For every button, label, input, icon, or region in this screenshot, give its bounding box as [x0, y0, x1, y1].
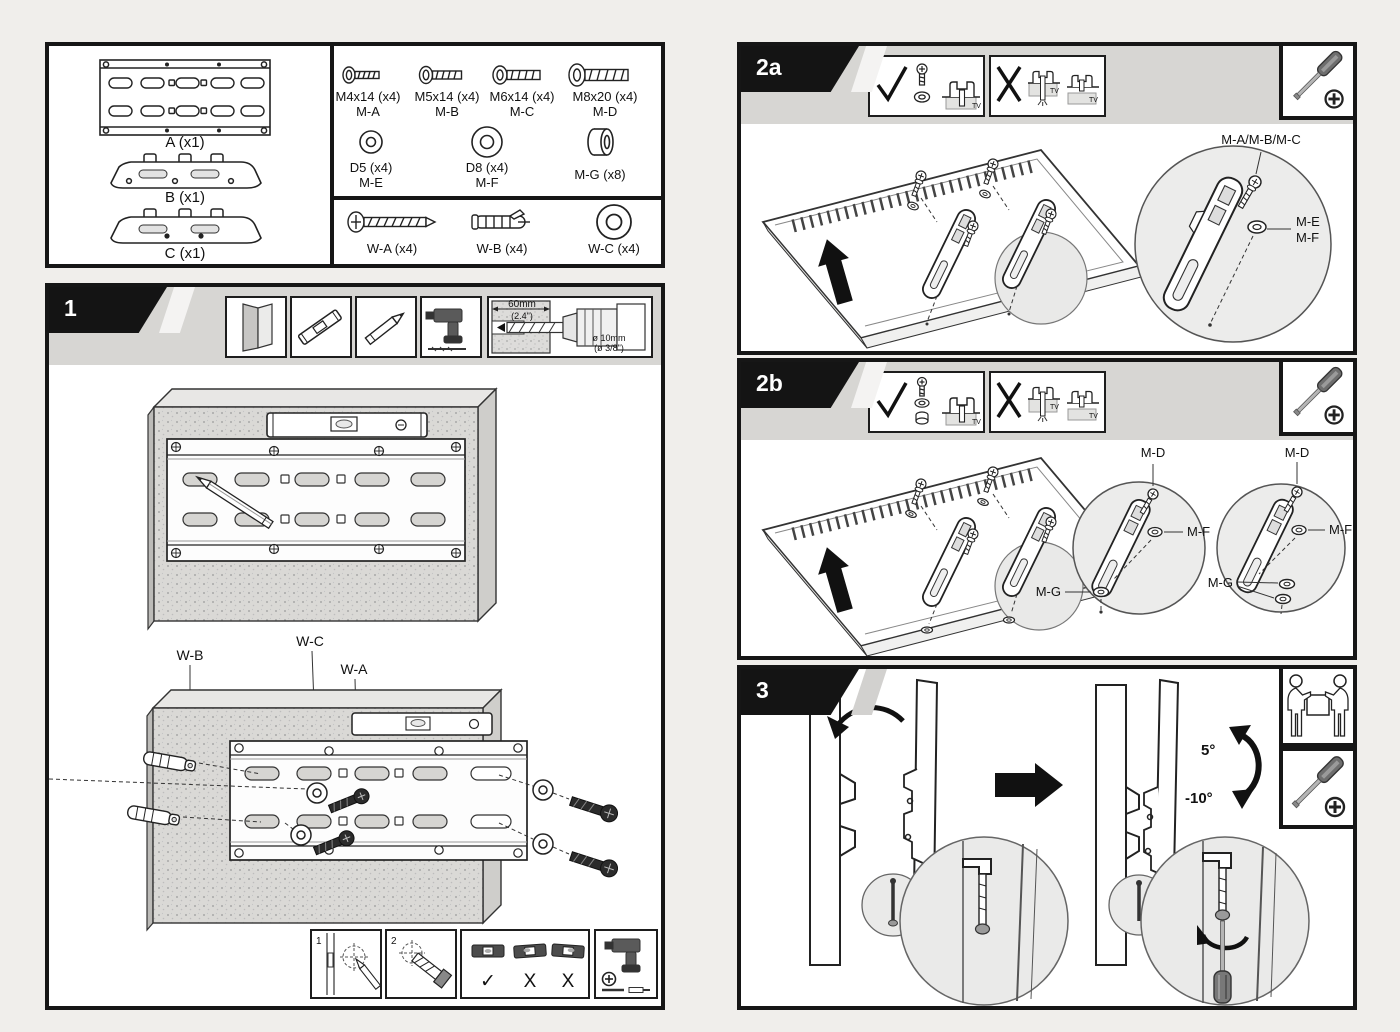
screw-icon — [917, 64, 927, 85]
wall-top-face — [153, 690, 501, 708]
step1-number-chip: 1 — [49, 287, 199, 333]
drill-length-inch-label: (2.4") — [511, 311, 533, 321]
step1-number: 1 — [64, 295, 77, 322]
spirit-level-on-plate — [352, 713, 492, 735]
wb-label: W-B — [177, 647, 204, 663]
screw-md-label: M-D — [1141, 445, 1166, 460]
wc-label: W-C — [296, 633, 324, 649]
tv-label: TV — [972, 103, 981, 110]
step3-number: 3 — [756, 677, 769, 704]
washer-me-size: D5 (x4) — [350, 160, 393, 175]
step2a-illustration: M-A/M-B/M-C M-E M-F — [741, 126, 1353, 351]
mark-hole-icon: 1 — [312, 931, 380, 997]
tv-label: TV — [972, 419, 981, 426]
washer-me-label: M-E — [1296, 214, 1320, 229]
washer-mf-code: M-F — [475, 175, 498, 190]
wa-label: W-A — [341, 661, 369, 677]
screw-mb-size: M5x14 (x4) — [414, 89, 479, 104]
washer-detail — [1148, 528, 1162, 537]
step2b-screwdriver-box — [1279, 358, 1357, 436]
washer-mf-size: D8 (x4) — [466, 160, 509, 175]
step2a-number: 2a — [756, 54, 782, 81]
step1-level-check-box: ✓ X X — [460, 929, 590, 999]
wrong-usage-icon: TV TV — [991, 57, 1104, 115]
washer-on-plate-1 — [307, 783, 327, 803]
chip-slash — [851, 46, 887, 92]
screw-md-label-2: M-D — [1285, 445, 1310, 460]
anchor-wb-label: W-B (x4) — [476, 241, 527, 256]
wall-top-face — [154, 389, 496, 407]
level-ok-icon — [472, 945, 504, 957]
drill-spec-icon: 60mm (2.4") ø 10mm (ø 3/8") — [489, 298, 651, 356]
tilt-up-label: 5° — [1201, 742, 1215, 759]
tool-drillspec-box: 60mm (2.4") ø 10mm (ø 3/8") — [487, 296, 653, 358]
tool-drill-box — [420, 296, 482, 358]
chip-slash — [159, 287, 195, 333]
correct-mount-diagram: TV — [942, 398, 981, 426]
zoom-circle-2 — [1217, 462, 1345, 614]
washer-me-code: M-E — [359, 175, 383, 190]
tilt-down-label: -10° — [1185, 790, 1213, 807]
washer-icon — [915, 92, 930, 102]
drill-icon — [422, 298, 480, 356]
level-x2-mark: X — [562, 971, 575, 992]
washer-mf-icon — [472, 127, 502, 157]
step2a-screwdriver-box — [1279, 42, 1357, 120]
step1-drill-tool-box — [594, 929, 658, 999]
screw-right-1 — [568, 793, 619, 824]
wall-left-face — [148, 407, 154, 629]
washer-mf-label: M-F — [1296, 230, 1319, 245]
step1-sub2-box: 2 — [385, 929, 457, 999]
chip-slash — [851, 362, 887, 408]
step3-screwdriver-box — [1279, 747, 1357, 829]
spacer-mg-label-2: M-G — [1208, 575, 1233, 590]
wall-plate-a — [167, 439, 465, 561]
screwdriver-icon — [1283, 751, 1353, 825]
part-b-label: B (x1) — [165, 189, 205, 206]
anchor-wb-icon — [472, 210, 530, 229]
washer-mf-label: M-F — [1187, 524, 1210, 539]
screw-too-long-diagram: TV — [1028, 388, 1060, 423]
step3-illustration: 5° -10° — [741, 669, 1353, 1006]
part-c-bracket — [111, 209, 261, 243]
tool-pencil-box — [355, 296, 417, 358]
wrong-usage-icon: TV TV — [991, 373, 1104, 431]
step2b-number: 2b — [756, 370, 783, 397]
tv-label: TV — [1089, 413, 1098, 420]
sub1-number: 1 — [316, 936, 322, 947]
instruction-manual-page: A (x1) B (x1) C (x1) — [0, 0, 1400, 1032]
m-hardware-illustration: M4x14 (x4) M-A M5x14 (x4) M-B M6x14 (x4)… — [334, 46, 661, 196]
wall-plate-profile — [840, 774, 855, 856]
washer-mf-label-2: M-F — [1329, 522, 1352, 537]
screws-label: M-A/M-B/M-C — [1221, 132, 1300, 147]
pencil-icon — [357, 298, 415, 356]
drill-dia-inch-label: (ø 3/8") — [594, 343, 624, 353]
washer-detail — [1292, 526, 1306, 535]
spirit-level-icon — [292, 298, 350, 356]
hang-scene — [810, 680, 1068, 1005]
step2b-wrong-box: TV TV — [989, 371, 1106, 433]
wall-icon — [227, 298, 285, 356]
tv-label: TV — [1050, 404, 1059, 411]
tv-label: TV — [1050, 88, 1059, 95]
zoom-circle-1 — [1065, 464, 1205, 614]
level-check-icon: ✓ X X — [462, 931, 588, 997]
two-person-lift-box — [1279, 665, 1357, 747]
spacer-detail — [1094, 588, 1109, 597]
w-hardware-illustration: W-A (x4) W-B (x4) W-C (x4) — [334, 200, 661, 264]
hook-zoom-circle — [900, 837, 1068, 1005]
sub2-number: 2 — [391, 936, 397, 947]
screwdriver-icon — [1283, 362, 1353, 432]
screw-md-size: M8x20 (x4) — [572, 89, 637, 104]
tv-label: TV — [1089, 97, 1098, 104]
screwdriver-icon — [1283, 46, 1353, 116]
drill-length-label: 60mm — [508, 299, 536, 310]
step3-number-chip: 3 — [741, 669, 891, 715]
step2b-panel: 2b — [737, 358, 1357, 660]
step2a-panel: 2a TV — [737, 42, 1357, 355]
tilt-arrow — [1241, 735, 1259, 795]
washer-right-2 — [533, 834, 553, 854]
lag-screw-wa-icon — [348, 212, 435, 232]
screw-right-2 — [568, 848, 619, 879]
cross-icon — [998, 67, 1020, 101]
screw-too-short-diagram: TV — [1067, 76, 1099, 105]
level-tilt-right-icon — [552, 944, 585, 958]
part-c-label: C (x1) — [165, 245, 206, 262]
screw-mc-code: M-C — [510, 104, 535, 119]
screw-too-long-diagram: TV — [1028, 72, 1060, 107]
correct-mount-diagram: TV — [942, 82, 981, 110]
screw-ma-icon — [343, 67, 379, 83]
screw-mb-icon — [420, 67, 462, 84]
spacer-mg-icon — [588, 129, 613, 155]
spacer-icon — [916, 412, 928, 424]
adjust-zoom-circle — [1141, 837, 1309, 1005]
screw-ma-code: M-A — [356, 104, 380, 119]
screw-mb-code: M-B — [435, 104, 459, 119]
step2a-number-chip: 2a — [741, 46, 891, 92]
level-x1-mark: X — [524, 971, 537, 992]
level-tilt-left-icon — [514, 944, 547, 958]
drill-dia-label: ø 10mm — [592, 333, 625, 343]
washer-on-plate-2 — [291, 825, 311, 845]
lag-screw-wa-label: W-A (x4) — [367, 241, 417, 256]
chip-slash — [851, 669, 887, 715]
wall-plate-profile — [1126, 787, 1139, 859]
wall-side-face — [478, 389, 496, 621]
step2b-number-chip: 2b — [741, 362, 891, 408]
step3-panel: 3 — [737, 665, 1357, 1010]
two-person-lift-icon — [1283, 669, 1353, 743]
tool-level-box — [290, 296, 352, 358]
tool-wall-box — [225, 296, 287, 358]
level-ok-mark: ✓ — [480, 971, 496, 992]
parts-list-panel: A (x1) B (x1) C (x1) — [45, 42, 665, 268]
washer-right-1 — [533, 780, 553, 800]
wall-plate-a — [230, 741, 527, 860]
drill-hole-icon: 2 — [387, 931, 455, 997]
washer-wc-label: W-C (x4) — [588, 241, 640, 256]
next-arrow — [995, 763, 1063, 807]
brackets-illustration: A (x1) B (x1) C (x1) — [49, 46, 330, 264]
tilt-scene: 5° -10° — [1096, 680, 1309, 1005]
step2b-illustration: M-D M-F M-G — [741, 442, 1353, 656]
step1-fixing-illustration: W-B W-C W-A — [49, 633, 661, 933]
washer-detail — [1248, 221, 1266, 233]
spirit-level-on-wall — [267, 413, 427, 437]
screw-mc-size: M6x14 (x4) — [489, 89, 554, 104]
step1-panel: 1 — [45, 283, 665, 1010]
screw-ma-size: M4x14 (x4) — [335, 89, 400, 104]
screw-too-short-diagram: TV — [1067, 392, 1099, 421]
spacer-mg-label: M-G (x8) — [574, 167, 625, 182]
screw-icon — [918, 378, 927, 397]
screw-md-icon — [569, 64, 628, 86]
screw-mc-icon — [493, 66, 540, 84]
washer-icon — [915, 399, 929, 407]
part-a-label: A (x1) — [165, 134, 204, 151]
spacer-mg-label: M-G — [1036, 584, 1061, 599]
washer-me-icon — [360, 131, 382, 153]
step2a-wrong-box: TV TV — [989, 55, 1106, 117]
cross-icon — [998, 383, 1020, 417]
screw-md-code: M-D — [593, 104, 618, 119]
washer-wc-icon — [597, 205, 631, 239]
step1-sub1-box: 1 — [310, 929, 382, 999]
drill-tool-icon — [596, 931, 656, 997]
part-a-wall-plate — [100, 60, 270, 135]
part-b-bracket — [111, 154, 261, 188]
step1-marking-illustration — [49, 365, 661, 643]
